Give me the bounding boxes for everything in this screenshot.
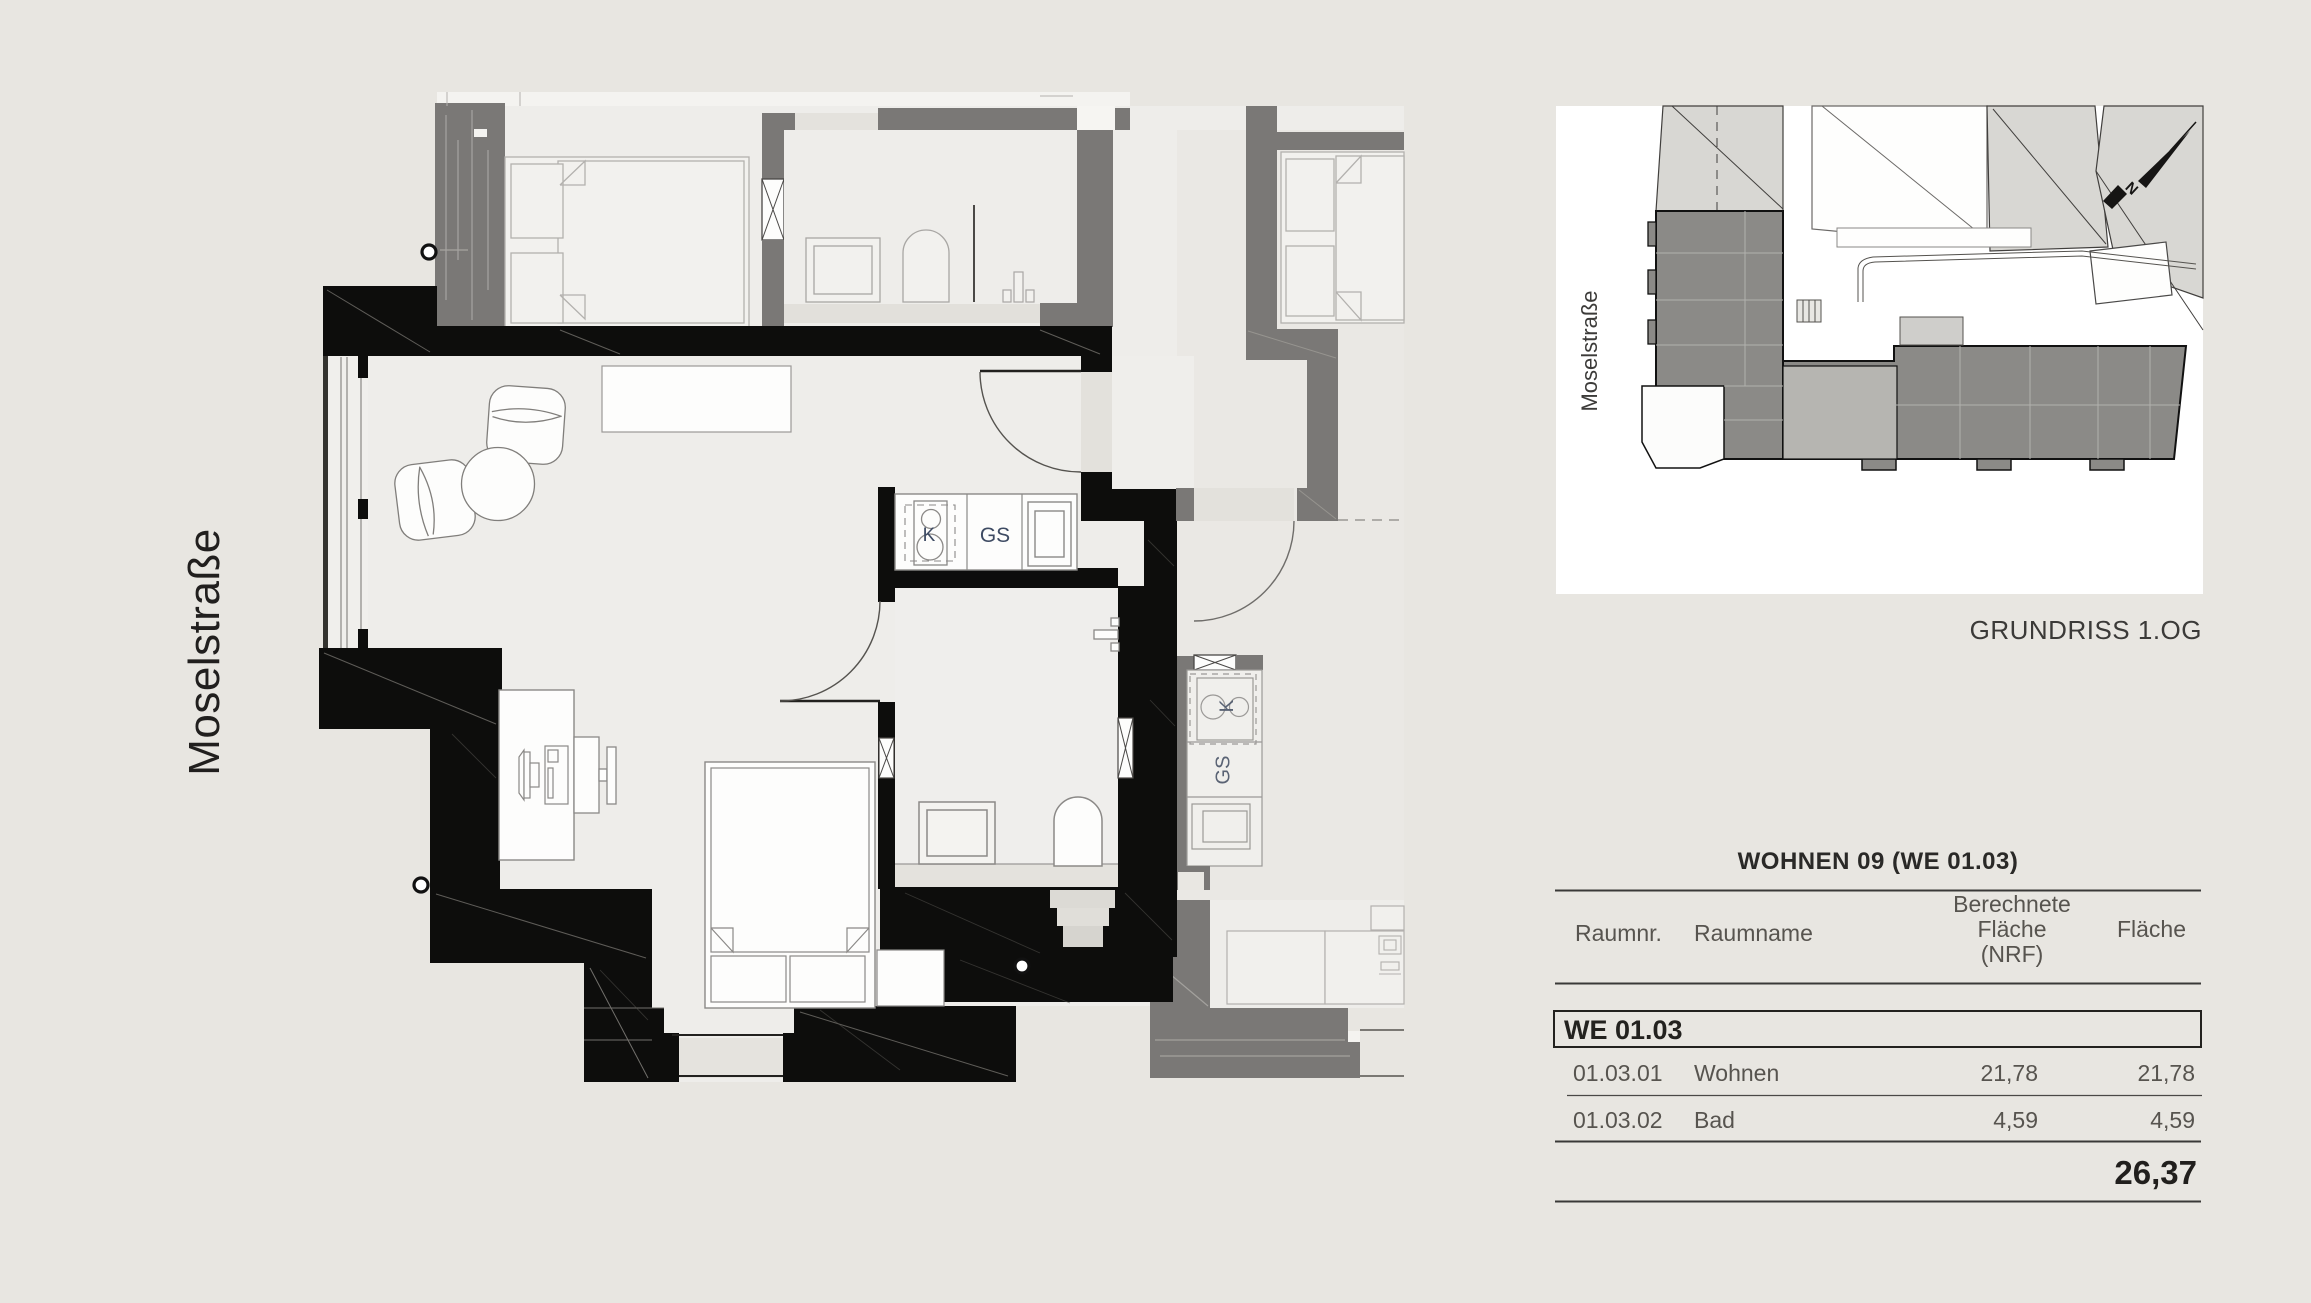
svg-text:K: K [923,525,936,546]
svg-text:21,78: 21,78 [2137,1060,2195,1086]
svg-text:(NRF): (NRF) [1981,941,2044,967]
svg-text:4,59: 4,59 [1993,1107,2038,1133]
svg-text:Fläche: Fläche [2117,916,2186,942]
svg-text:01.03.01: 01.03.01 [1573,1060,1663,1086]
svg-text:WOHNEN 09 (WE 01.03): WOHNEN 09 (WE 01.03) [1738,848,2019,875]
svg-text:Wohnen: Wohnen [1694,1060,1779,1086]
svg-text:Moselstraße: Moselstraße [180,528,229,776]
svg-text:Raumnr.: Raumnr. [1575,920,1662,946]
svg-text:Moselstraße: Moselstraße [1577,290,1602,411]
svg-text:Raumname: Raumname [1694,920,1813,946]
svg-text:21,78: 21,78 [1980,1060,2038,1086]
svg-text:4,59: 4,59 [2150,1107,2195,1133]
svg-text:WE 01.03: WE 01.03 [1564,1015,1683,1045]
svg-text:Fläche: Fläche [1977,916,2046,942]
svg-text:GS: GS [1212,756,1234,785]
svg-text:26,37: 26,37 [2114,1154,2197,1191]
svg-text:K: K [1217,699,1238,712]
svg-text:Berechnete: Berechnete [1953,891,2071,917]
svg-text:GRUNDRISS 1.OG: GRUNDRISS 1.OG [1970,615,2202,645]
svg-text:01.03.02: 01.03.02 [1573,1107,1663,1133]
svg-text:Bad: Bad [1694,1107,1735,1133]
svg-text:GS: GS [980,524,1010,547]
